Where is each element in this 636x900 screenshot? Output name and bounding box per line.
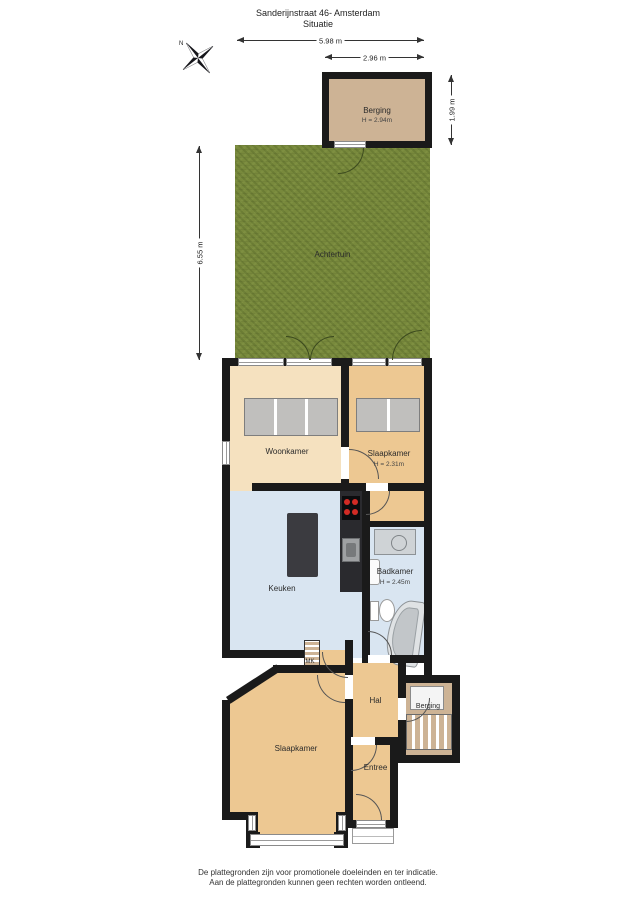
dimension-shed-depth: 1.99 m [451, 75, 452, 145]
bedroom1-closet-fixture [356, 398, 420, 432]
label-storage: Berging [402, 703, 454, 710]
front-door-opening [356, 820, 386, 828]
wall [322, 72, 432, 79]
label-bathroom-height: H = 2.45m [366, 579, 424, 587]
dimension-shed-width: 2.96 m [325, 57, 424, 58]
label-meter-cupboard: MK [298, 659, 322, 666]
footer-disclaimer-line2: Aan de plattegronden kunnen geen rechten… [0, 878, 636, 888]
compass-north-icon: N [176, 36, 220, 80]
bedroom2-bay-floor [252, 812, 336, 836]
entry-doorstep [352, 828, 394, 844]
label-shed-height: H = 2.94m [332, 117, 422, 125]
bay-window-right [338, 815, 346, 831]
door-opening [366, 483, 388, 491]
bay-window-front [250, 834, 344, 846]
label-bathroom: Badkamer [366, 567, 424, 577]
page-subtitle: Situatie [0, 19, 636, 30]
wall [398, 675, 460, 683]
floorplan-page: Sanderijnstraat 46- Amsterdam Situatie N… [0, 0, 636, 900]
toilet-tank-fixture [370, 601, 379, 621]
wall [452, 675, 460, 763]
door-opening [351, 737, 375, 745]
label-garden: Achtertuin [285, 250, 380, 260]
wall [222, 366, 230, 658]
wall [222, 650, 304, 658]
window [238, 358, 284, 366]
wall [349, 483, 432, 491]
dimension-garden-width: 5.98 m [237, 40, 424, 41]
wall [252, 483, 349, 491]
washbasin-fixture [374, 529, 416, 555]
wall [222, 700, 230, 812]
kitchen-island-fixture [287, 513, 318, 577]
label-shed: Berging [332, 106, 422, 116]
wall [322, 72, 329, 148]
bay-window-left [248, 815, 256, 831]
shed-door-opening [334, 141, 366, 148]
page-title: Sanderijnstraat 46- Amsterdam [0, 8, 636, 19]
door-opening [368, 655, 390, 663]
window [352, 358, 386, 366]
wall [362, 521, 432, 527]
compass-north-label: N [179, 41, 183, 47]
wall [390, 745, 398, 828]
label-living: Woonkamer [237, 447, 337, 457]
dimension-garden-depth: 6.55 m [199, 146, 200, 360]
label-kitchen: Keuken [242, 584, 322, 594]
door-opening [345, 675, 353, 699]
window [222, 441, 230, 465]
wall [398, 755, 460, 763]
label-bedroom1-height: H = 2.31m [350, 461, 428, 469]
label-bedroom1: Slaapkamer [350, 449, 428, 459]
cooktop-hob-fixture [342, 496, 360, 520]
label-hall: Hal [353, 696, 398, 706]
footer-disclaimer-line1: De plattegronden zijn voor promotionele … [0, 868, 636, 878]
label-bedroom2: Slaapkamer [246, 744, 346, 754]
label-entry: Entree [353, 763, 398, 773]
wall [425, 72, 432, 148]
door-opening [341, 447, 349, 479]
kitchen-sink-fixture [342, 538, 360, 562]
living-closet-fixture [244, 398, 338, 436]
